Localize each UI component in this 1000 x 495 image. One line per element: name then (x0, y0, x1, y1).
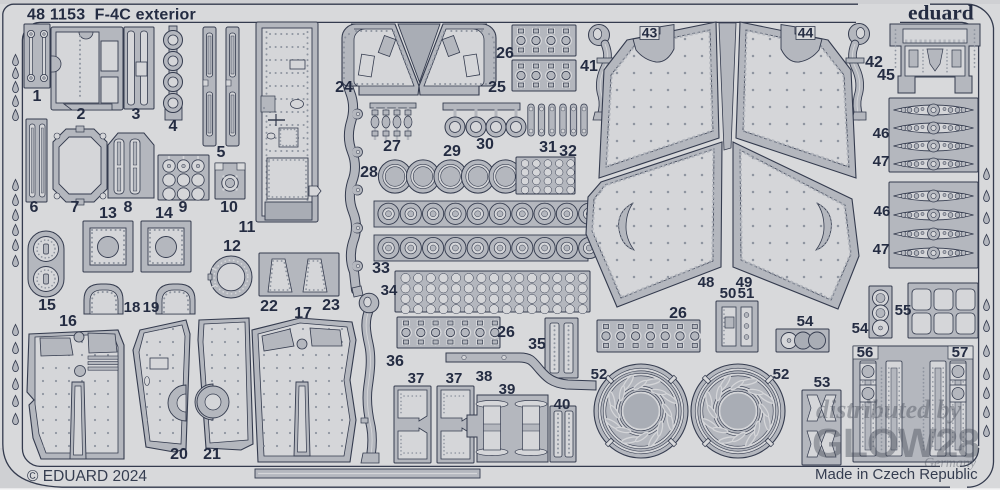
svg-text:3: 3 (132, 106, 141, 123)
svg-text:39: 39 (499, 381, 516, 398)
svg-text:eduard: eduard (908, 1, 974, 25)
svg-text:46: 46 (874, 203, 891, 220)
svg-text:51: 51 (738, 285, 755, 302)
svg-text:37: 37 (408, 370, 425, 387)
svg-text:41: 41 (580, 58, 598, 75)
svg-text:26: 26 (496, 45, 514, 62)
svg-text:26: 26 (669, 305, 687, 322)
svg-text:31: 31 (539, 139, 557, 156)
svg-text:47: 47 (873, 153, 890, 170)
svg-text:20: 20 (170, 446, 188, 463)
svg-text:26: 26 (497, 324, 515, 341)
svg-text:25: 25 (488, 79, 506, 96)
svg-text:Germany: Germany (924, 456, 977, 471)
svg-text:38: 38 (476, 368, 493, 385)
svg-text:30: 30 (476, 136, 494, 153)
svg-text:13: 13 (99, 205, 117, 222)
svg-text:© EDUARD 2024: © EDUARD 2024 (27, 468, 147, 485)
svg-text:48 1153 F-4C exterior: 48 1153 F-4C exterior (27, 7, 196, 24)
svg-text:11: 11 (239, 219, 256, 236)
svg-text:45: 45 (877, 67, 895, 84)
svg-text:23: 23 (322, 297, 340, 314)
svg-text:10: 10 (220, 199, 238, 216)
svg-text:46: 46 (873, 125, 890, 142)
svg-text:27: 27 (383, 138, 401, 155)
svg-text:21: 21 (203, 446, 221, 463)
svg-text:37: 37 (446, 370, 463, 387)
svg-text:8: 8 (124, 199, 133, 216)
svg-text:43: 43 (642, 25, 658, 41)
svg-text:40: 40 (554, 396, 571, 413)
svg-text:22: 22 (260, 298, 278, 315)
svg-text:36: 36 (386, 353, 404, 370)
svg-text:35: 35 (528, 336, 546, 353)
svg-text:44: 44 (798, 25, 814, 41)
svg-text:29: 29 (443, 143, 461, 160)
svg-text:15: 15 (38, 297, 56, 314)
svg-text:18: 18 (124, 299, 141, 316)
svg-text:17: 17 (294, 305, 312, 322)
svg-text:24: 24 (335, 79, 353, 96)
svg-text:54: 54 (852, 320, 869, 337)
svg-text:19: 19 (143, 299, 160, 316)
svg-text:5: 5 (217, 144, 226, 161)
svg-text:1: 1 (33, 88, 42, 105)
svg-text:48: 48 (698, 274, 715, 291)
svg-text:34: 34 (381, 282, 398, 299)
svg-text:2: 2 (77, 106, 86, 123)
svg-text:57: 57 (952, 344, 969, 361)
svg-text:6: 6 (30, 199, 39, 216)
svg-text:52: 52 (591, 366, 608, 383)
svg-text:7: 7 (71, 199, 80, 216)
svg-text:12: 12 (223, 238, 241, 255)
svg-text:53: 53 (814, 374, 831, 391)
svg-text:50: 50 (720, 285, 737, 302)
svg-text:33: 33 (372, 260, 390, 277)
svg-text:55: 55 (895, 302, 912, 319)
svg-text:28: 28 (360, 164, 378, 181)
svg-text:9: 9 (179, 199, 188, 216)
svg-text:16: 16 (59, 313, 77, 330)
svg-text:56: 56 (857, 344, 874, 361)
svg-text:54: 54 (797, 313, 814, 330)
svg-text:4: 4 (169, 118, 178, 135)
svg-text:14: 14 (155, 205, 173, 222)
svg-text:47: 47 (873, 241, 890, 258)
svg-text:52: 52 (773, 366, 790, 383)
